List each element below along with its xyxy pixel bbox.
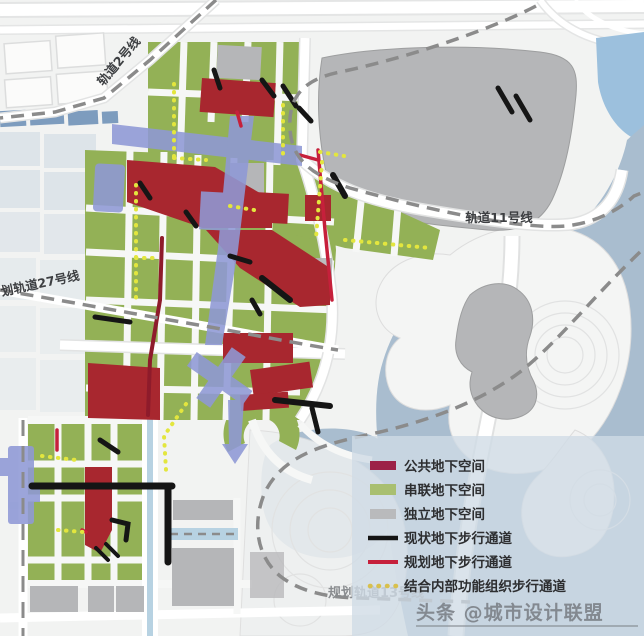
legend-label-linked: 串联地下空间 <box>404 482 485 499</box>
legend-swatch-linked <box>370 484 396 495</box>
planning-map-canvas: 轨道2号线 轨道11号线 划轨道27号线 规划轨道13号线 公共地下空间 串联地… <box>0 0 644 636</box>
underground-space-planning-map: 轨道2号线 轨道11号线 划轨道27号线 规划轨道13号线 公共地下空间 串联地… <box>0 0 644 636</box>
legend-label-planned: 规划地下步行通道 <box>404 554 512 571</box>
legend-swatch-independent <box>370 509 396 519</box>
legend-label-existing: 现状地下步行通道 <box>404 530 512 547</box>
legend-label-independent: 独立地下空间 <box>404 506 485 523</box>
legend-label-internal: 结合内部功能组织步行通道 <box>404 578 566 595</box>
rail-line-11-label: 轨道11号线 <box>465 210 533 225</box>
legend-label-public: 公共地下空间 <box>404 458 485 475</box>
legend-swatch-public <box>370 461 396 470</box>
watermark-text: 头条 @城市设计联盟 <box>416 601 604 624</box>
